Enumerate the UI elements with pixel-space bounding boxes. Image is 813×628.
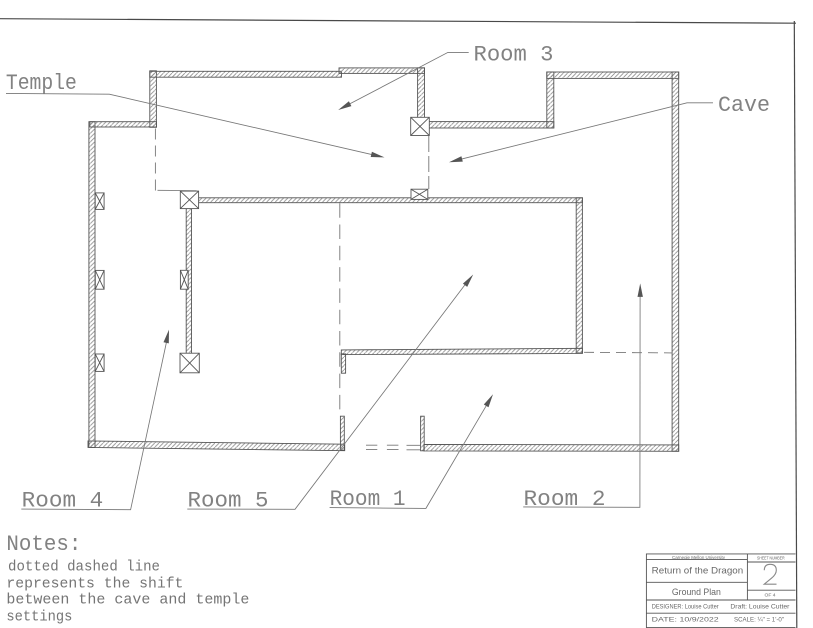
svg-text:Carnegie Mellon University: Carnegie Mellon University bbox=[672, 555, 726, 560]
svg-text:settings: settings bbox=[6, 609, 72, 626]
svg-text:dotted dashed line: dotted dashed line bbox=[8, 559, 160, 576]
svg-text:represents the shift: represents the shift bbox=[6, 576, 183, 593]
svg-text:DATE: 10/9/2022: DATE: 10/9/2022 bbox=[652, 617, 720, 624]
svg-text:SHEET NUMBER: SHEET NUMBER bbox=[757, 555, 785, 560]
svg-text:DESIGNER: Louise Cutter: DESIGNER: Louise Cutter bbox=[652, 604, 720, 611]
svg-text:Room 4: Room 4 bbox=[22, 489, 104, 514]
svg-text:Room 2: Room 2 bbox=[524, 487, 606, 512]
svg-text:between the cave and temple: between the cave and temple bbox=[6, 592, 249, 609]
svg-text:Cave: Cave bbox=[718, 93, 770, 118]
svg-text:Return of the Dragon: Return of the Dragon bbox=[652, 566, 744, 577]
svg-text:Room 5: Room 5 bbox=[188, 489, 269, 514]
svg-text:Room 1: Room 1 bbox=[330, 487, 406, 512]
svg-text:Room 3: Room 3 bbox=[474, 42, 554, 67]
svg-text:Temple: Temple bbox=[6, 71, 77, 96]
svg-text:Draft: Louise Cutter: Draft: Louise Cutter bbox=[730, 604, 790, 611]
svg-text:Notes:: Notes: bbox=[6, 532, 81, 557]
svg-text:Ground Plan: Ground Plan bbox=[672, 587, 721, 598]
svg-text:OF 4: OF 4 bbox=[765, 592, 777, 597]
svg-text:SCALE: ¼" = 1'-0": SCALE: ¼" = 1'-0" bbox=[734, 617, 785, 624]
